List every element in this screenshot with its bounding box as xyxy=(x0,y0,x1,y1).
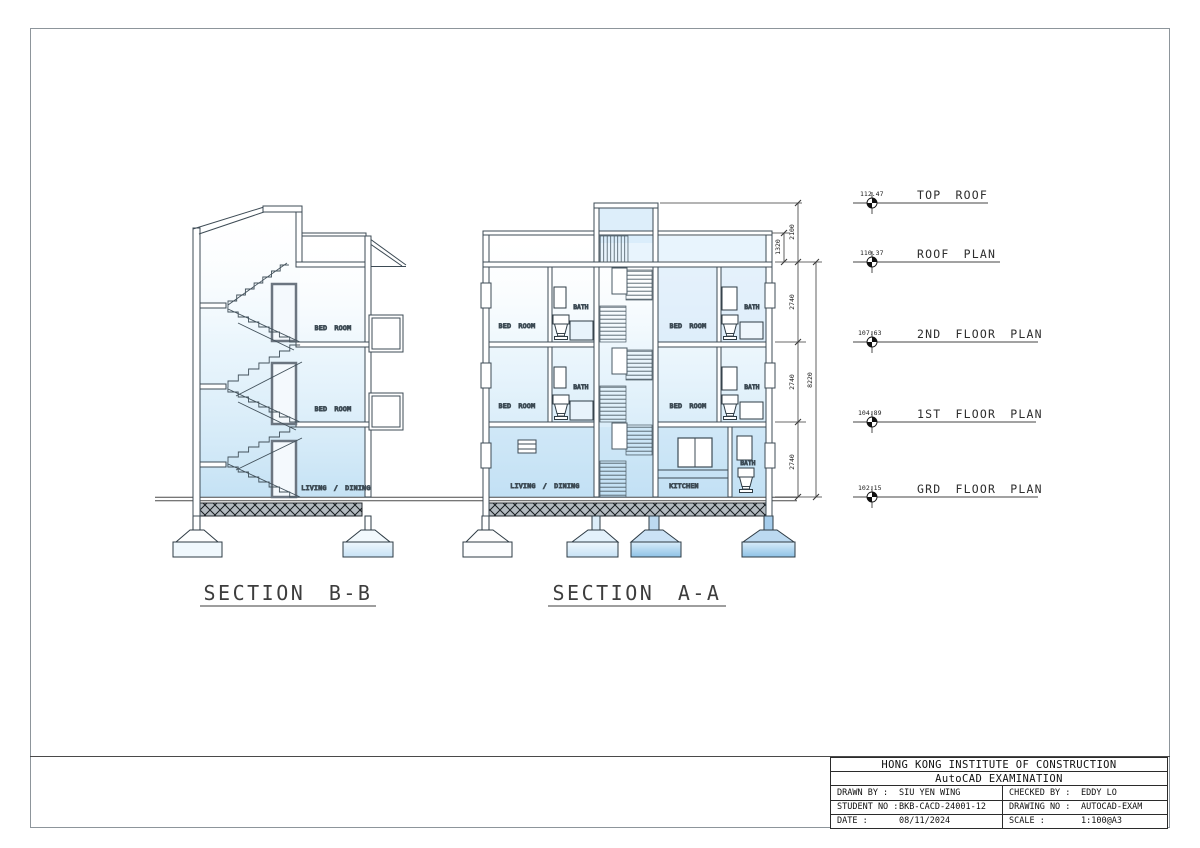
bb-window-bays xyxy=(369,315,403,430)
level-name: 2ND FLOOR PLAN xyxy=(917,327,1043,341)
aa-living-dining-label: LIVING / DINING xyxy=(510,482,579,490)
drawn-by-cell: DRAWN BY : SIU YEN WING xyxy=(831,786,1003,799)
title-block-row-date: DATE : 08/11/2024 SCALE : 1:100@A3 xyxy=(831,814,1167,828)
bb-living-dining-label: LIVING / DINING xyxy=(301,484,370,492)
aa-bath-grd-label: BATH xyxy=(740,460,755,467)
exam-title: AutoCAD EXAMINATION xyxy=(935,773,1063,785)
title-block-exam: AutoCAD EXAMINATION xyxy=(831,771,1167,785)
drawn-by-label: DRAWN BY : xyxy=(831,788,899,798)
aa-bedroom-r2-label: BED ROOM xyxy=(670,322,707,330)
level-name: TOP ROOF xyxy=(917,188,988,202)
aa-bedroom-r1-label: BED ROOM xyxy=(670,402,707,410)
drawn-by-value: SIU YEN WING xyxy=(899,788,960,798)
level-elevation: 107.63 xyxy=(858,329,882,337)
level-name: ROOF PLAN xyxy=(917,247,996,261)
checked-by-cell: CHECKED BY : EDDY LO xyxy=(1003,786,1167,799)
title-block-institute: HONG KONG INSTITUTE OF CONSTRUCTION xyxy=(831,758,1167,771)
dim-top-roof: 2100 xyxy=(788,224,796,240)
level-elevation: 102.15 xyxy=(858,484,882,492)
dim-floor-1: 2740 xyxy=(788,294,796,310)
drawing-no-cell: DRAWING NO : AUTOCAD-EXAM xyxy=(1003,801,1167,814)
scale-value: 1:100@A3 xyxy=(1081,816,1122,826)
level-grd-floor: 102.15 GRD FLOOR PLAN xyxy=(853,482,1043,508)
foundation-footings xyxy=(173,516,795,557)
dim-overall: 8220 xyxy=(806,372,814,388)
level-1st-floor: 104.89 1ST FLOOR PLAN xyxy=(853,407,1043,433)
aa-bedroom-l1-label: BED ROOM xyxy=(499,402,536,410)
section-bb-title: SECTION B-B xyxy=(204,581,373,605)
title-block-row-drawn: DRAWN BY : SIU YEN WING CHECKED BY : EDD… xyxy=(831,785,1167,799)
bb-doors xyxy=(272,284,296,497)
ground-line xyxy=(155,497,797,500)
drawing-no-value: AUTOCAD-EXAM xyxy=(1081,802,1142,812)
date-value: 08/11/2024 xyxy=(899,816,950,826)
bb-bedroom-lower-label: BED ROOM xyxy=(315,405,352,413)
dimension-texts: 2100 1320 2740 2740 2740 8220 xyxy=(774,224,814,470)
level-elevation: 112.47 xyxy=(860,190,884,198)
drawing-sheet: BED ROOM BED ROOM LIVING / DINING xyxy=(0,0,1200,848)
scale-cell: SCALE : 1:100@A3 xyxy=(1003,815,1167,828)
level-roof-plan: 110.37 ROOF PLAN xyxy=(853,247,1000,273)
aa-bedroom-l2-label: BED ROOM xyxy=(499,322,536,330)
section-titles: SECTION B-B SECTION A-A xyxy=(200,581,726,606)
title-block-row-student: STUDENT NO : BKB-CACD-24001-12 DRAWING N… xyxy=(831,800,1167,814)
student-no-cell: STUDENT NO : BKB-CACD-24001-12 xyxy=(831,801,1003,814)
drawing-no-label: DRAWING NO : xyxy=(1003,802,1081,812)
institute-name: HONG KONG INSTITUTE OF CONSTRUCTION xyxy=(881,759,1116,771)
aa-kitchen-label: KITCHEN xyxy=(669,482,699,490)
student-no-value: BKB-CACD-24001-12 xyxy=(899,802,986,812)
level-top-roof: 112.47 TOP ROOF xyxy=(853,188,988,214)
dim-floor-3: 2740 xyxy=(788,454,796,470)
dim-floor-2: 2740 xyxy=(788,374,796,390)
level-elevation: 110.37 xyxy=(860,249,884,257)
level-markers: 112.47 TOP ROOF 110.37 ROOF PLAN 107.63 … xyxy=(853,188,1043,508)
student-no-label: STUDENT NO : xyxy=(831,802,899,812)
aa-bath-l1-label: BATH xyxy=(573,384,588,391)
level-elevation: 104.89 xyxy=(858,409,882,417)
aa-bath-l2-label: BATH xyxy=(573,304,588,311)
checked-by-label: CHECKED BY : xyxy=(1003,788,1081,798)
level-name: 1ST FLOOR PLAN xyxy=(917,407,1043,421)
aa-bath-r2-label: BATH xyxy=(744,304,759,311)
aa-bath-r1-label: BATH xyxy=(744,384,759,391)
bb-bedroom-upper-label: BED ROOM xyxy=(315,324,352,332)
dim-parapet: 1320 xyxy=(774,239,782,255)
date-cell: DATE : 08/11/2024 xyxy=(831,815,1003,828)
level-2nd-floor: 107.63 2ND FLOOR PLAN xyxy=(853,327,1043,353)
title-block: HONG KONG INSTITUTE OF CONSTRUCTION Auto… xyxy=(830,757,1168,829)
checked-by-value: EDDY LO xyxy=(1081,788,1117,798)
date-label: DATE : xyxy=(831,816,899,826)
drawing-canvas: BED ROOM BED ROOM LIVING / DINING xyxy=(0,0,1200,848)
section-aa-title: SECTION A-A xyxy=(553,581,722,605)
level-name: GRD FLOOR PLAN xyxy=(917,482,1043,496)
scale-label: SCALE : xyxy=(1003,816,1081,826)
